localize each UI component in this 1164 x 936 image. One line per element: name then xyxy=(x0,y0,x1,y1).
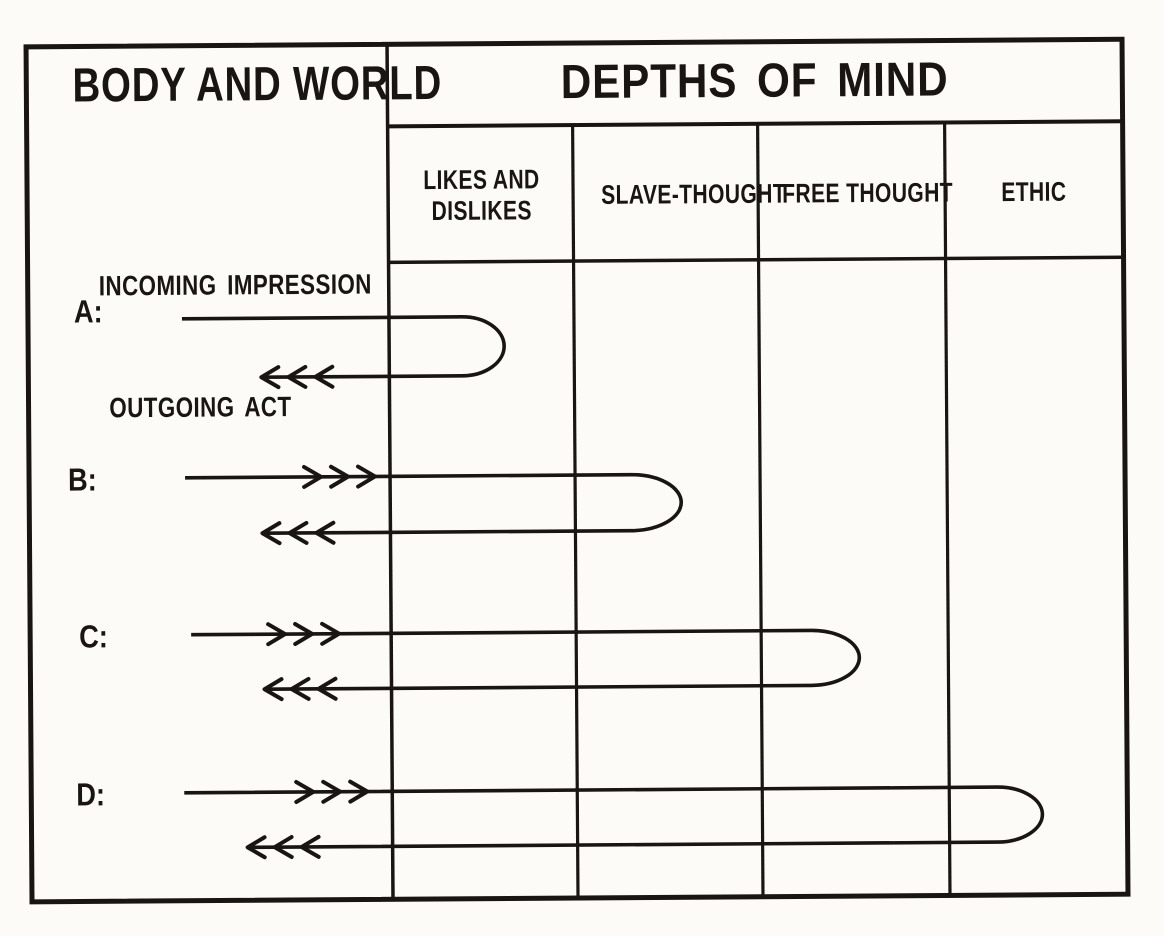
column-header-free-thought-text: FREE THOUGHT xyxy=(782,178,953,209)
figure: BODY AND WORLD DEPTHS OF MIND LIKES AND … xyxy=(0,0,1164,936)
scanned-page: BODY AND WORLD DEPTHS OF MIND LIKES AND … xyxy=(0,0,1164,936)
column-header-free-thought: FREE THOUGHT xyxy=(758,178,945,209)
header-rule xyxy=(388,121,1123,126)
column-header-likes-and-dislikes: LIKES AND DISLIKES xyxy=(390,164,573,227)
row-label-c: C: xyxy=(79,619,113,654)
column-header-slave-thought: SLAVE-THOUGHT xyxy=(575,180,758,211)
left-panel-title: BODY AND WORLD xyxy=(26,58,387,113)
incoming-impression-text: INCOMING IMPRESSION xyxy=(99,269,372,302)
column-header-ethic-text: ETHIC xyxy=(1001,178,1066,208)
outgoing-act-text: OUTGOING ACT xyxy=(109,392,291,424)
subheader-rule xyxy=(389,257,1124,262)
right-panel-title: DEPTHS OF MIND xyxy=(387,53,1122,111)
row-label-c-text: C: xyxy=(79,619,108,654)
column-divider-line-3 xyxy=(945,122,950,895)
row-label-a-text: A: xyxy=(74,294,103,329)
column-divider-line-1 xyxy=(573,125,578,898)
row-label-a: A: xyxy=(74,294,108,329)
outgoing-act-label: OUTGOING ACT xyxy=(0,391,400,425)
row-a-loop-arrow xyxy=(182,317,504,378)
row-label-d-text: D: xyxy=(76,777,105,812)
row-label-b: B: xyxy=(68,462,102,497)
row-c-loop-arrow xyxy=(191,630,859,690)
row-b-loop-arrow xyxy=(185,474,681,533)
column-header-likes-and-dislikes-text: LIKES AND DISLIKES xyxy=(417,164,546,227)
row-label-d: D: xyxy=(76,777,110,812)
right-panel-title-text: DEPTHS OF MIND xyxy=(561,54,949,110)
row-label-b-text: B: xyxy=(68,462,97,497)
column-header-ethic: ETHIC xyxy=(945,177,1123,208)
column-divider-line-2 xyxy=(758,124,763,897)
diagram-canvas xyxy=(0,0,1164,936)
